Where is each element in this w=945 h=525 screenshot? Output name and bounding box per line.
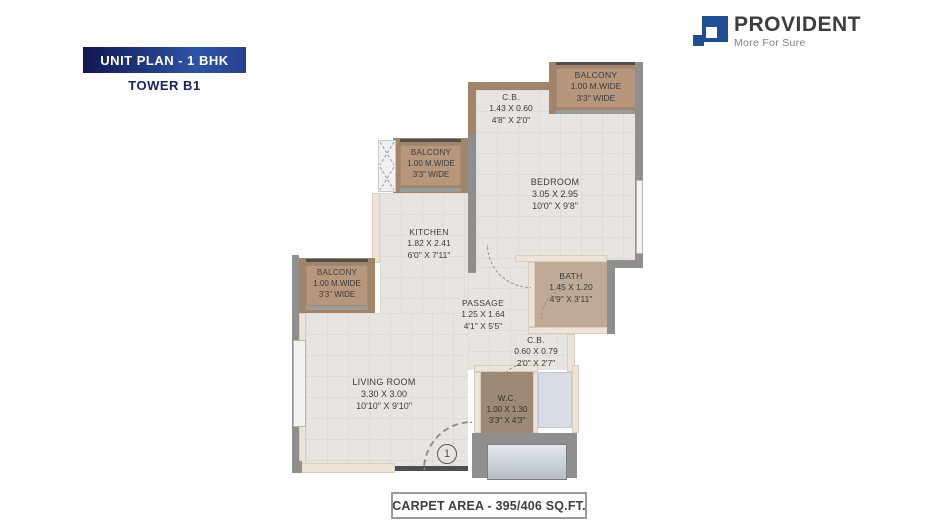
room-dims-ft: 4'1" X 5'5" xyxy=(447,321,519,332)
balcony-living-sill xyxy=(306,306,368,310)
bath-bottom-wall xyxy=(528,327,615,334)
room-dims-m: 0.60 X 0.79 xyxy=(497,346,575,357)
room-label-balcony-living: BALCONY 1.00 M.WIDE 3'3" WIDE xyxy=(304,268,370,300)
room-name: BALCONY xyxy=(399,148,463,159)
room-dims-m: 1.45 X 1.20 xyxy=(532,282,610,293)
room-dims-ft: 3'3" WIDE xyxy=(304,290,370,301)
lobby-mat xyxy=(487,444,567,480)
room-label-bedroom: BEDROOM 3.05 X 2.95 10'0" X 9'8" xyxy=(494,176,616,212)
balcony-living-window xyxy=(306,259,368,262)
room-name: W.C. xyxy=(477,394,537,405)
room-label-balcony-kitchen: BALCONY 1.00 M.WIDE 3'3" WIDE xyxy=(399,148,463,180)
room-dims-ft: 4'8" X 2'0" xyxy=(470,115,552,126)
room-name: BALCONY xyxy=(304,268,370,279)
kitchen-left-wall xyxy=(372,193,380,263)
shaft-cross-icon xyxy=(379,141,395,191)
living-bottom-corner xyxy=(292,461,302,473)
room-dims-m: 3.30 X 3.00 xyxy=(328,388,440,400)
room-dims-m: 1.00 M.WIDE xyxy=(399,159,463,170)
balcony-top-sill xyxy=(556,110,636,114)
floor-plan: 1 BALCONY 1.00 M.WIDE 3'3" WIDE C.B. 1.4… xyxy=(0,0,945,525)
room-dims-m: 1.00 M.WIDE xyxy=(550,81,642,92)
room-name: C.B. xyxy=(470,92,552,103)
room-label-passage: PASSAGE 1.25 X 1.64 4'1" X 5'5" xyxy=(447,298,519,332)
room-name: LIVING ROOM xyxy=(328,376,440,388)
cb-top-wall xyxy=(468,82,553,90)
room-dims-ft: 3'3" X 4'3" xyxy=(477,416,537,427)
balcony-living-outer xyxy=(292,255,299,313)
room-name: BEDROOM xyxy=(494,176,616,188)
room-name: C.B. xyxy=(497,335,575,346)
shaft-right-wall xyxy=(572,365,579,433)
balcony-kitchen-window xyxy=(400,139,461,142)
room-dims-m: 1.43 X 0.60 xyxy=(470,103,552,114)
balcony-top-window xyxy=(556,62,636,65)
room-label-living: LIVING ROOM 3.30 X 3.00 10'10" X 9'10" xyxy=(328,376,440,412)
service-shaft xyxy=(538,372,572,428)
balcony-kitchen-sill xyxy=(400,188,461,192)
room-label-cb-top: C.B. 1.43 X 0.60 4'8" X 2'0" xyxy=(470,92,552,126)
entry-marker: 1 xyxy=(437,444,457,464)
room-dims-ft: 10'10" X 9'10" xyxy=(328,400,440,412)
room-dims-m: 1.25 X 1.64 xyxy=(447,309,519,320)
room-dims-ft: 2'0" X 2'7" xyxy=(497,358,575,369)
room-dims-m: 3.05 X 2.95 xyxy=(494,188,616,200)
room-label-wc: W.C. 1.00 X 1.30 3'3" X 4'3" xyxy=(477,394,537,426)
room-dims-ft: 6'0" X 7'11" xyxy=(384,250,474,261)
room-label-cb-mid: C.B. 0.60 X 0.79 2'0" X 2'7" xyxy=(497,335,575,369)
room-label-balcony-top: BALCONY 1.00 M.WIDE 3'3" WIDE xyxy=(550,70,642,104)
room-dims-ft: 3'3" WIDE xyxy=(399,170,463,181)
room-name: PASSAGE xyxy=(447,298,519,309)
room-dims-m: 1.82 X 2.41 xyxy=(384,238,474,249)
bedroom-bath-step-wall xyxy=(607,260,643,268)
room-name: KITCHEN xyxy=(384,227,474,238)
room-dims-ft: 3'3" WIDE xyxy=(550,93,642,104)
room-dims-m: 1.00 X 1.30 xyxy=(477,405,537,416)
bedroom-window xyxy=(636,180,643,254)
room-label-bath: BATH 1.45 X 1.20 4'9" X 3'11" xyxy=(532,271,610,305)
shaft-box xyxy=(378,140,396,192)
room-label-kitchen: KITCHEN 1.82 X 2.41 6'0" X 7'11" xyxy=(384,227,474,261)
living-window xyxy=(293,340,306,427)
living-bottom-wall xyxy=(299,463,395,473)
room-dims-ft: 10'0" X 9'8" xyxy=(494,200,616,212)
room-dims-m: 1.00 M.WIDE xyxy=(304,279,370,290)
room-name: BALCONY xyxy=(550,70,642,81)
room-name: BATH xyxy=(532,271,610,282)
room-dims-ft: 4'9" X 3'11" xyxy=(532,294,610,305)
carpet-area-label: CARPET AREA - 395/406 SQ.FT. xyxy=(391,492,587,519)
